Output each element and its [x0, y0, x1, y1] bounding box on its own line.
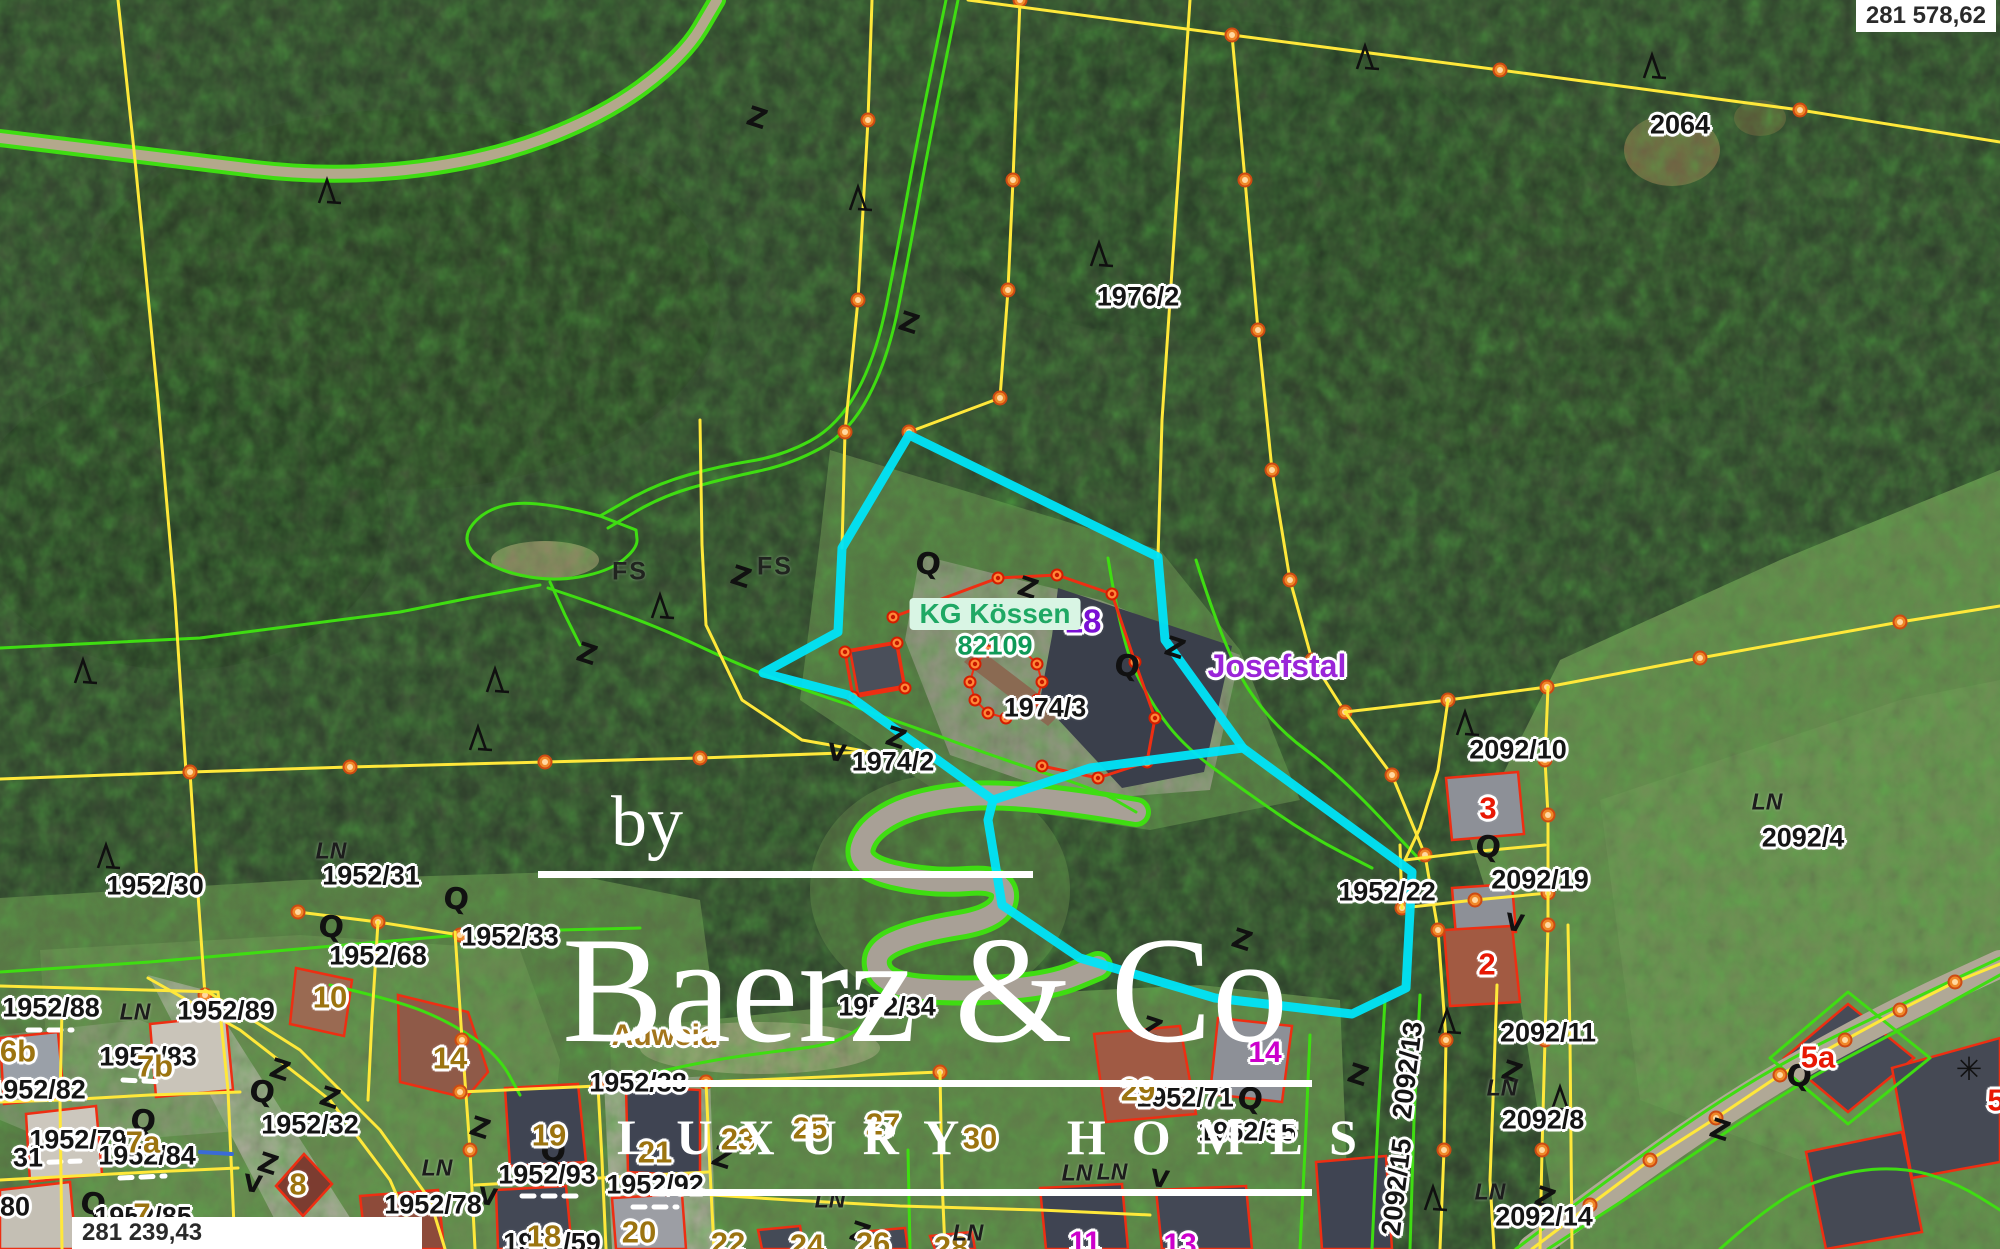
vertex-dot-core — [457, 932, 463, 938]
vertex-dot-core — [1435, 927, 1441, 933]
q-usage-symbol: Q — [247, 1073, 277, 1111]
q-usage-symbol: Q — [1235, 1080, 1265, 1118]
vertex-dot-core — [1022, 649, 1026, 653]
vertex-dot-core — [973, 698, 977, 702]
q-usage-symbol: Q — [128, 1102, 158, 1140]
vertex-dot-core — [986, 649, 990, 653]
vertex-dot-core — [895, 641, 899, 645]
vertex-dot-core — [986, 711, 990, 715]
building-left2 — [0, 1182, 76, 1249]
vertex-dot-core — [1897, 619, 1903, 625]
vertex-dot-core — [1255, 327, 1261, 333]
vertex-dot-core — [295, 909, 301, 915]
vertex-dot-core — [1443, 1037, 1449, 1043]
building-10 — [290, 968, 352, 1036]
building-21 — [626, 1086, 700, 1176]
y-ad — [1400, 845, 1402, 908]
vertex-dot-core — [459, 1037, 465, 1043]
building-r2 — [1806, 1132, 1922, 1249]
vertex-dot-core — [1055, 573, 1059, 577]
vertex-dot-core — [1035, 662, 1039, 666]
vertex-dot-core — [1010, 177, 1016, 183]
q-usage-symbol: Q — [1112, 647, 1142, 685]
dash1 — [28, 1161, 80, 1163]
q-usage-symbol: Q — [538, 1132, 568, 1170]
vertex-dot-core — [842, 429, 848, 435]
vertex-dot-core — [1004, 644, 1008, 648]
building-2 — [1444, 926, 1520, 1006]
vertex-dot-core — [1309, 657, 1315, 663]
vertex-dot-core — [1389, 772, 1395, 778]
vertex-dot-core — [1497, 67, 1503, 73]
vertex-dot-core — [1269, 467, 1275, 473]
q-usage-symbol: Q — [913, 545, 943, 583]
vertex-dot-core — [1040, 764, 1044, 768]
vertex-dot-core — [194, 877, 200, 883]
vertex-dot-core — [1153, 716, 1157, 720]
vertex-dot-core — [1797, 107, 1803, 113]
vertex-dot-core — [968, 680, 972, 684]
coordinate-bottom-left: 281 239,43 — [72, 1217, 422, 1249]
q-usage-symbol: Q — [441, 880, 471, 918]
vertex-dot-core — [1545, 812, 1551, 818]
deciduous-tree-symbol: ✳ — [1956, 1050, 1983, 1088]
vertex-dot-core — [1035, 698, 1039, 702]
vertex-dot-core — [903, 686, 907, 690]
blue-mark — [200, 1152, 232, 1154]
q-usage-symbol: Q — [1784, 1057, 1814, 1095]
cadastral-map-svg: ✳ZZZZZZZZZZZZZZZZZZZZVVVVVQQQQQQQQQQQQ — [0, 0, 2000, 1249]
vertex-dot-core — [1110, 592, 1114, 596]
vertex-dot-core — [865, 117, 871, 123]
vertex-dot-core — [843, 650, 847, 654]
vertex-dot-core — [467, 1147, 473, 1153]
vertex-dot-core — [1287, 577, 1293, 583]
vertex-dot-core — [697, 755, 703, 761]
vertex-dot-core — [891, 615, 895, 619]
vertex-dot-core — [1952, 979, 1958, 985]
vertex-dot-core — [973, 662, 977, 666]
building-x — [1316, 1156, 1392, 1249]
vertex-dot-core — [1229, 32, 1235, 38]
q-usage-symbol: Q — [316, 908, 346, 946]
building-left1 — [26, 1106, 102, 1182]
vertex-dot-core — [187, 769, 193, 775]
vertex-dot-core — [1542, 1037, 1548, 1043]
vertex-dot-core — [1647, 1157, 1653, 1163]
vertex-dot-core — [1777, 1072, 1783, 1078]
building-left3 — [0, 1032, 64, 1104]
vertex-dot-core — [1587, 1202, 1593, 1208]
vertex-dot-core — [1004, 716, 1008, 720]
vertex-dot-core — [997, 395, 1003, 401]
vertex-dot-core — [1697, 655, 1703, 661]
building-row1 — [758, 1226, 804, 1249]
vertex-dot-core — [1539, 1147, 1545, 1153]
vertex-dot-core — [1472, 897, 1478, 903]
vertex-dot-core — [1022, 711, 1026, 715]
vertex-dot-core — [1040, 680, 1044, 684]
vertex-dot-core — [1545, 922, 1551, 928]
q-usage-symbol: Q — [1473, 828, 1503, 866]
y-p — [60, 1008, 62, 1249]
vertex-dot-core — [1897, 1007, 1903, 1013]
vertex-dot-core — [1542, 757, 1548, 763]
vertex-dot-core — [855, 297, 861, 303]
building-20b — [612, 1194, 686, 1249]
vertex-dot-core — [347, 764, 353, 770]
vertex-dot-core — [996, 576, 1000, 580]
vertex-dot-core — [542, 759, 548, 765]
green-v4 — [908, 1150, 910, 1249]
vertex-dot-core — [1005, 287, 1011, 293]
dash6 — [123, 1080, 163, 1082]
building-13 — [1156, 1186, 1252, 1249]
vertex-dot-core — [1096, 776, 1100, 780]
building-11 — [1040, 1184, 1128, 1249]
map-canvas[interactable]: ✳ZZZZZZZZZZZZZZZZZZZZVVVVVQQQQQQQQQQQQ 2… — [0, 0, 2000, 1249]
vertex-dot-core — [457, 1089, 463, 1095]
vertex-dot-core — [1242, 177, 1248, 183]
coordinate-top-right: 281 578,62 — [1856, 0, 1996, 32]
vertex-dot-core — [1441, 1147, 1447, 1153]
vertex-dot-core — [1842, 1037, 1848, 1043]
building-row3 — [930, 1232, 975, 1249]
